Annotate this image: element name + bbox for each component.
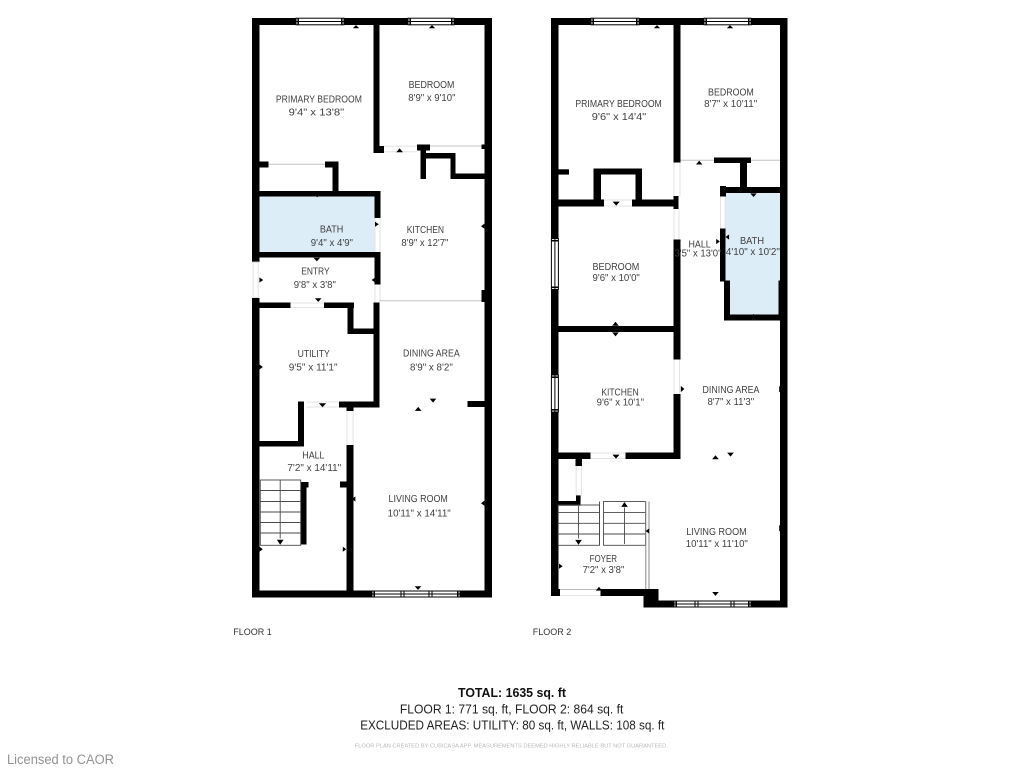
svg-text:8'7" x 10'11": 8'7" x 10'11" [704, 99, 758, 110]
svg-text:FLOOR 1: 771 sq. ft, FLOOR 2:: FLOOR 1: 771 sq. ft, FLOOR 2: 864 sq. ft [400, 702, 624, 716]
svg-text:EXCLUDED AREAS: UTILITY: 80 sq: EXCLUDED AREAS: UTILITY: 80 sq. ft, WALL… [360, 719, 665, 733]
svg-text:9'8" x 3'8": 9'8" x 3'8" [294, 280, 337, 291]
svg-text:FLOOR PLAN CREATED BY CUBICASA: FLOOR PLAN CREATED BY CUBICASA APP. MEAS… [355, 743, 668, 749]
svg-text:7'2" x 14'11": 7'2" x 14'11" [287, 463, 341, 474]
svg-text:DINING AREA: DINING AREA [403, 349, 460, 360]
svg-text:10'11" x 11'10": 10'11" x 11'10" [686, 539, 749, 550]
svg-text:Licensed to CAOR: Licensed to CAOR [7, 752, 114, 767]
svg-text:BATH: BATH [320, 224, 344, 235]
svg-text:LIVING ROOM: LIVING ROOM [686, 527, 746, 538]
svg-text:FLOOR 1: FLOOR 1 [233, 627, 272, 637]
svg-text:BATH: BATH [740, 236, 764, 247]
svg-text:TOTAL: 1635 sq. ft: TOTAL: 1635 sq. ft [458, 686, 567, 700]
svg-text:KITCHEN: KITCHEN [407, 225, 444, 236]
svg-text:UTILITY: UTILITY [298, 349, 331, 360]
svg-text:BEDROOM: BEDROOM [593, 262, 640, 273]
svg-text:4'10" x 10'2": 4'10" x 10'2" [726, 247, 780, 258]
svg-text:9'6" x 10'1": 9'6" x 10'1" [597, 398, 645, 409]
svg-text:9'6" x 10'0": 9'6" x 10'0" [593, 273, 641, 284]
svg-text:8'7" x 11'3": 8'7" x 11'3" [707, 397, 754, 408]
svg-text:8'9" x 8'2": 8'9" x 8'2" [410, 362, 453, 373]
svg-text:PRIMARY BEDROOM: PRIMARY BEDROOM [276, 95, 362, 106]
svg-text:ENTRY: ENTRY [301, 266, 330, 277]
svg-text:3'5" x 13'0": 3'5" x 13'0" [675, 249, 722, 260]
svg-text:DINING AREA: DINING AREA [703, 385, 760, 396]
svg-text:9'4" x 4'9": 9'4" x 4'9" [311, 238, 354, 249]
svg-text:FLOOR 2: FLOOR 2 [533, 627, 572, 637]
svg-text:BEDROOM: BEDROOM [708, 88, 754, 99]
svg-text:9'4" x 13'8": 9'4" x 13'8" [289, 108, 345, 119]
svg-text:7'2" x 3'8": 7'2" x 3'8" [583, 565, 625, 576]
svg-text:HALL: HALL [302, 451, 325, 462]
svg-text:BEDROOM: BEDROOM [409, 80, 455, 91]
svg-text:9'6" x 14'4": 9'6" x 14'4" [592, 112, 647, 123]
svg-text:PRIMARY BEDROOM: PRIMARY BEDROOM [575, 99, 661, 110]
svg-text:10'11" x 14'11": 10'11" x 14'11" [388, 509, 452, 520]
svg-text:FOYER: FOYER [590, 554, 617, 565]
svg-text:9'5" x 11'1": 9'5" x 11'1" [289, 362, 338, 373]
svg-text:LIVING ROOM: LIVING ROOM [389, 494, 448, 505]
svg-text:8'9" x 12'7": 8'9" x 12'7" [401, 238, 448, 249]
svg-text:8'9" x 9'10": 8'9" x 9'10" [408, 93, 456, 104]
